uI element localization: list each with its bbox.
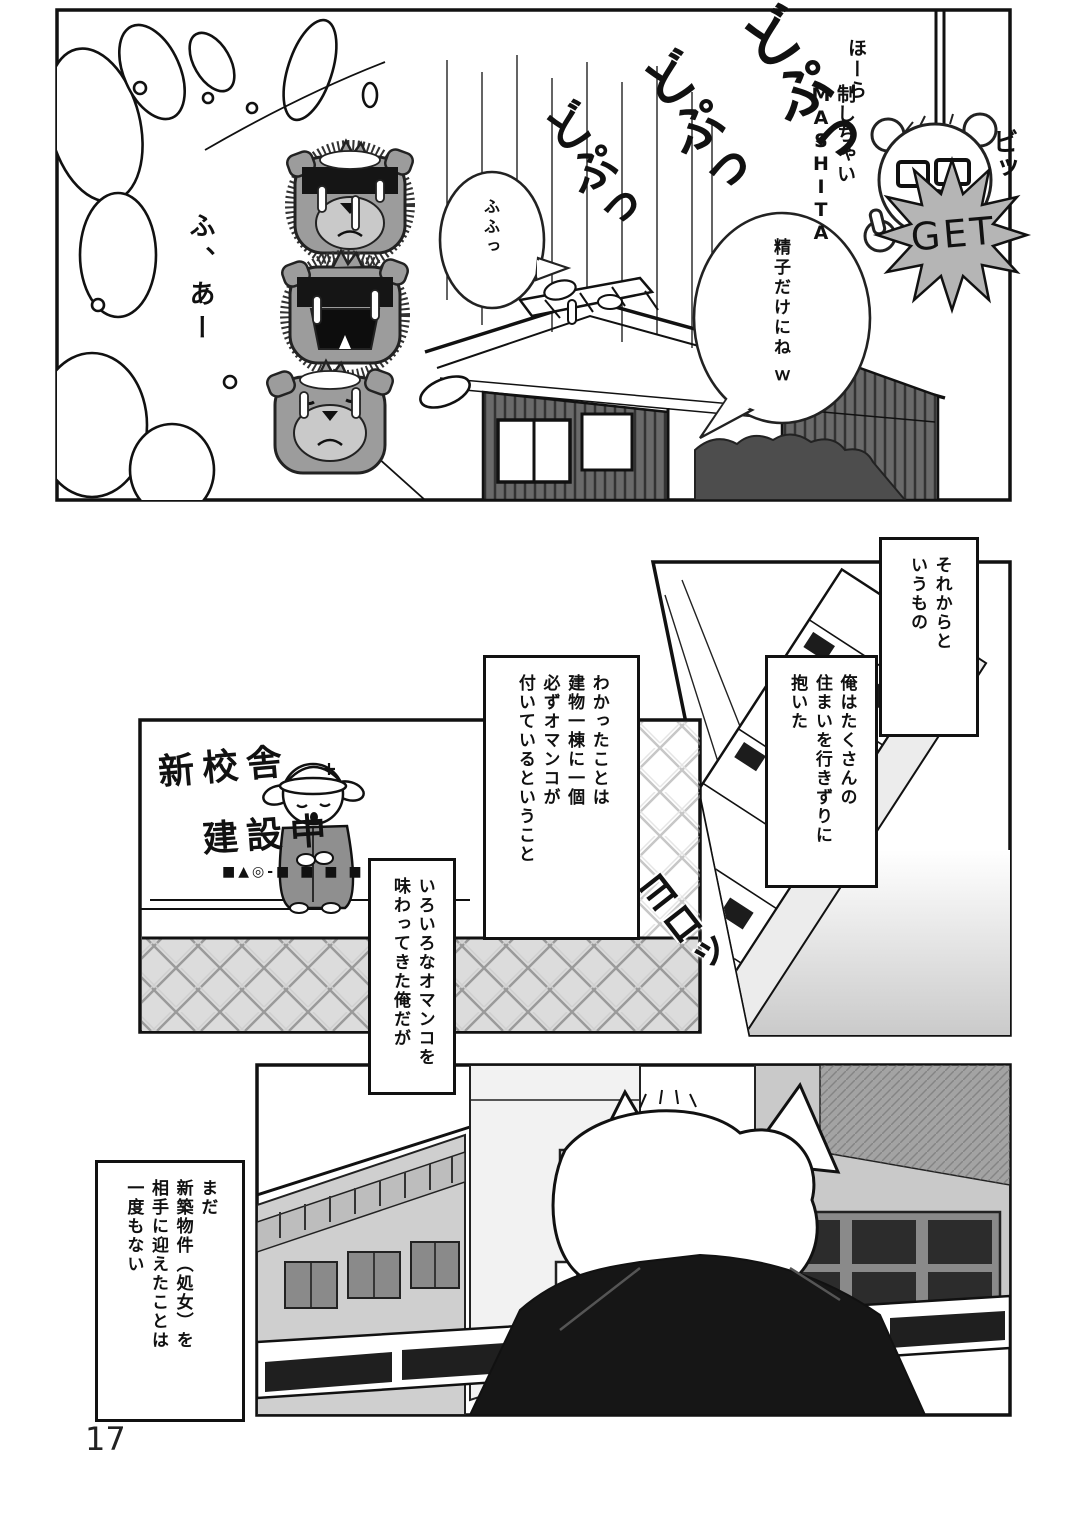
panel-4: [257, 1065, 1010, 1415]
face-bottom: [265, 361, 395, 473]
caption-iroiro-text: いろいろなオマンコを 味わってきた俺だが: [387, 877, 436, 1067]
caption-box-iroiro: いろいろなオマンコを 味わってきた俺だが: [368, 858, 456, 1095]
face-middle: [280, 251, 410, 375]
caption-box-wakatta: わかったことは 建物一棟に一個 必ずオマンコが 付いているということ: [483, 655, 640, 940]
caption-box-mada: まだ 新築物件（処女）を 相手に迎えたことは 一度もない: [95, 1160, 245, 1422]
bubble-small-text: ふふっ: [478, 198, 502, 308]
sign-fineprint: ■▲◎-■ ■ ■ ■: [222, 864, 365, 880]
manga-page: どぷっ どぷっ どぷっ ふ、あー ふふっ 精子だけにね ｗ ほーら 制しちゃいM…: [0, 0, 1075, 1518]
caption-ore-text: 俺はたくさんの 住まいを行きずりに 抱いた: [785, 674, 859, 845]
caption-box-sorekara: それからと いうもの: [879, 537, 979, 737]
caption-sorekara-text: それからと いうもの: [904, 556, 953, 651]
caption-box-ore: 俺はたくさんの 住まいを行きずりに 抱いた: [765, 655, 878, 888]
bubble-large-text: 精子だけにね ｗ: [768, 238, 793, 413]
sign-subtitle: 建設中: [200, 801, 335, 862]
caption-wakatta-text: わかったことは 建物一棟に一個 必ずオマンコが 付いているということ: [512, 674, 611, 864]
sigh-text: ふ、あー: [182, 212, 219, 412]
caption-seishichai: 制しちゃいMASHITA: [810, 84, 859, 284]
caption-mada-text: まだ 新築物件（処女）を 相手に迎えたことは 一度もない: [121, 1179, 220, 1350]
face-top: [285, 141, 415, 265]
get-badge-label: GET: [904, 208, 1002, 260]
sfx-click: ビッ: [990, 128, 1016, 180]
page-number: 17: [85, 1420, 126, 1458]
